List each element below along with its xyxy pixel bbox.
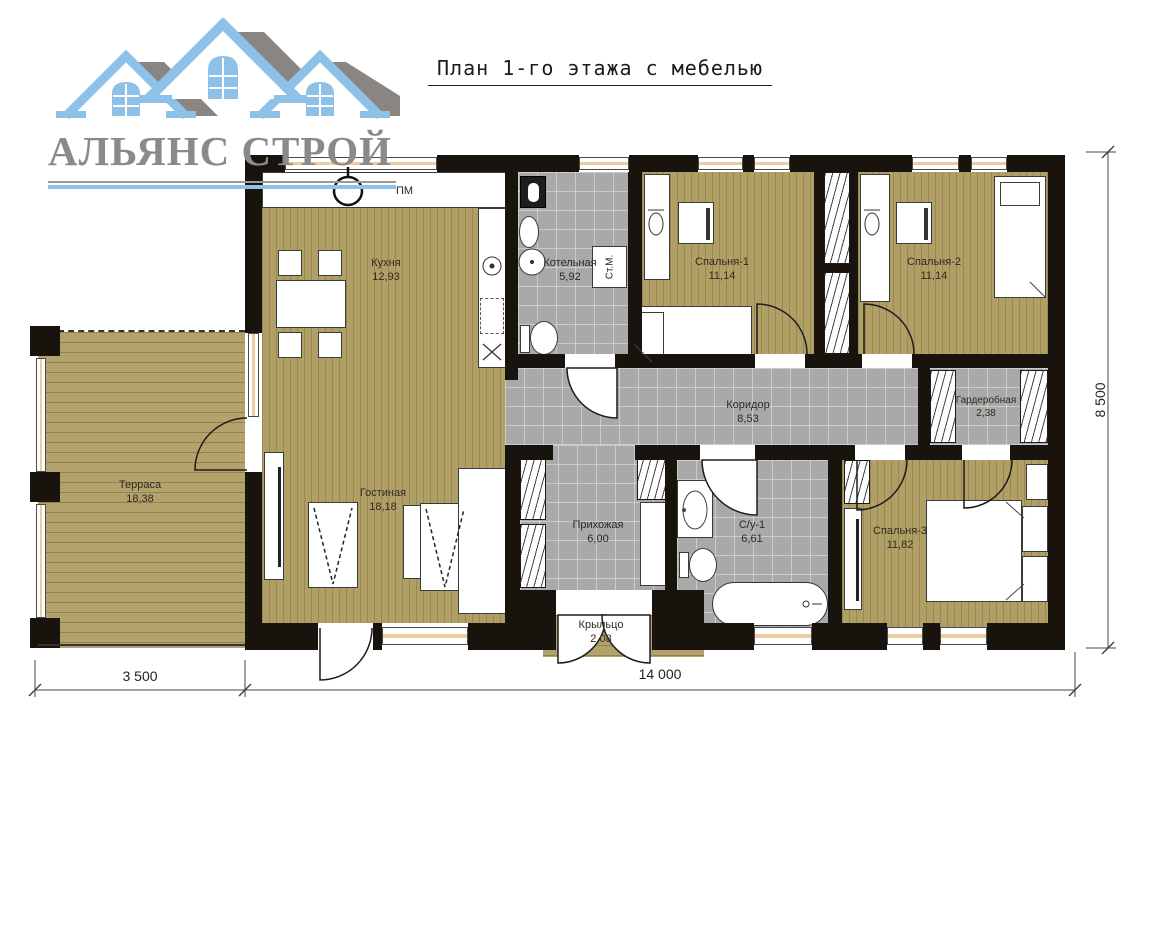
wall [912, 354, 1048, 368]
room-label-hallway: Прихожая6,00 [573, 518, 624, 547]
room-area: 6,00 [587, 533, 608, 545]
room-label-corridor: Коридор8,53 [726, 398, 769, 427]
bathroom-sink-unit [677, 480, 713, 538]
wall [805, 354, 862, 368]
room-label-terrace: Терраса18,38 [119, 478, 161, 507]
room-name: Терраса [119, 479, 161, 491]
wall [505, 368, 518, 380]
room-area: 18,18 [369, 501, 397, 513]
bathroom-toilet-tank [679, 552, 689, 578]
logo-divider-grey [48, 181, 396, 183]
window [912, 157, 959, 170]
company-name: АЛЬЯНС СТРОЙ [48, 127, 400, 175]
wardrobe-hall-lower [520, 524, 546, 588]
room-label-living: Гостиная18,18 [360, 486, 406, 515]
wall [850, 172, 858, 368]
wall [505, 590, 556, 650]
room-area: 11,14 [921, 270, 948, 282]
bedroom1-shelf [644, 174, 670, 280]
page-title: План 1-го этажа с мебелью [428, 56, 772, 86]
bedroom1-desk [678, 202, 714, 244]
dining-table [276, 280, 346, 328]
room-name: Спальня-3 [873, 525, 927, 537]
dining-chair [278, 332, 302, 358]
wall [629, 155, 698, 172]
wall [245, 623, 318, 650]
dim-house-depth: 8 500 [1092, 382, 1108, 417]
bedroom3-nightstand-top [1022, 506, 1048, 552]
wall [635, 445, 677, 460]
window [754, 627, 812, 645]
window [754, 157, 790, 170]
room-area: 11,14 [709, 270, 736, 282]
window [887, 627, 923, 645]
bedroom3-bed [926, 500, 1022, 602]
terrace-top-edge [38, 330, 245, 332]
room-name: Котельная [543, 257, 596, 269]
terrace-bottom-edge [38, 644, 245, 646]
room-name: Гардеробная [956, 395, 1017, 406]
window [579, 157, 629, 170]
armchair-left [308, 502, 358, 588]
bedroom3-corner-cabinet [1026, 464, 1048, 500]
washing-machine: Ст.М. [592, 246, 627, 288]
wardrobe-room-left-unit [930, 370, 956, 443]
sofa [458, 468, 508, 614]
wall [652, 590, 704, 650]
boiler-toilet-bowl [530, 321, 558, 355]
bathtub [712, 582, 828, 626]
wall [743, 155, 754, 172]
terrace-post-mid [30, 472, 60, 502]
room-area: 12,93 [372, 271, 400, 283]
wall [905, 445, 962, 460]
dining-chair [278, 250, 302, 276]
wardrobe-bedroom3 [844, 460, 870, 504]
bathroom-toilet-bowl [689, 548, 717, 582]
wall [824, 264, 850, 272]
logo-divider-blue [48, 185, 396, 189]
bedroom2-desk [896, 202, 932, 244]
room-area: 8,53 [737, 413, 758, 425]
boiler-unit [520, 176, 546, 208]
tv-stand [264, 452, 284, 580]
wall [828, 445, 855, 460]
room-area: 5,92 [559, 271, 580, 283]
wall [518, 354, 565, 368]
room-label-kitchen: Кухня12,93 [371, 256, 400, 285]
room-name: Коридор [726, 399, 769, 411]
washing-machine-label: Ст.М. [604, 255, 615, 280]
room-area: 18,38 [126, 493, 154, 505]
wall [628, 172, 642, 368]
wall [755, 445, 828, 460]
room-name: С/у-1 [739, 519, 765, 531]
wall [918, 368, 930, 445]
wardrobe-hall-upper [520, 452, 546, 520]
fridge [480, 298, 504, 334]
window [248, 333, 259, 417]
bedroom1-pillow [640, 312, 664, 356]
terrace-railing-window-lower [36, 504, 46, 618]
room-label-bedroom3: Спальня-311,82 [873, 524, 927, 553]
kitchen-counter-side [478, 208, 506, 368]
room-area: 2,38 [976, 408, 995, 419]
wall [505, 172, 518, 368]
room-label-wardrobe-room: Гардеробная2,38 [956, 394, 1017, 420]
room-name: Гостиная [360, 487, 406, 499]
wall [923, 623, 940, 650]
dim-house-width: 14 000 [639, 666, 682, 682]
wall [828, 460, 842, 628]
dim-terrace-width: 3 500 [122, 668, 157, 684]
company-logo: АЛЬЯНС СТРОЙ [48, 18, 400, 189]
boiler-sink [519, 216, 539, 248]
wall [1048, 155, 1065, 650]
bedroom2-pillow [1000, 182, 1040, 206]
wall [814, 172, 824, 368]
room-name: Спальня-2 [907, 256, 961, 268]
wall [790, 155, 912, 172]
room-name: Крыльцо [579, 619, 624, 631]
floor-plan-page: Ст.М. [0, 0, 1160, 938]
bedroom2-shelf [860, 174, 890, 302]
dining-chair [318, 332, 342, 358]
door-arc-living-exit [320, 628, 372, 680]
wall [704, 623, 754, 650]
logo-roofs-icon [48, 18, 400, 120]
wall [1010, 445, 1048, 460]
window [698, 157, 743, 170]
room-area: 11,82 [887, 539, 914, 551]
floor-corridor [505, 368, 918, 445]
wardrobe-bedroom1 [824, 172, 850, 264]
wall [373, 623, 382, 650]
room-area: 2,08 [590, 633, 611, 645]
dining-chair [318, 250, 342, 276]
room-label-boiler: Котельная5,92 [543, 256, 596, 285]
wardrobe-bedroom2 [824, 272, 850, 354]
window [940, 627, 987, 645]
wall [677, 445, 700, 460]
wall [959, 155, 971, 172]
terrace-post-top [30, 326, 60, 356]
wall [665, 460, 677, 590]
window [971, 157, 1007, 170]
room-name: Спальня-1 [695, 256, 749, 268]
window [382, 627, 468, 645]
room-name: Кухня [371, 257, 400, 269]
terrace-railing-window-upper [36, 358, 46, 472]
room-area: 6,61 [741, 533, 762, 545]
wall [615, 354, 755, 368]
wardrobe-room-right-unit [1020, 370, 1048, 443]
room-label-porch: Крыльцо2,08 [579, 618, 624, 647]
room-label-bedroom1: Спальня-111,14 [695, 255, 749, 284]
room-name: Прихожая [573, 519, 624, 531]
wall [437, 155, 579, 172]
wall [812, 623, 887, 650]
room-label-bathroom: С/у-16,61 [739, 518, 765, 547]
bedroom3-tv-stand [844, 508, 862, 610]
bedroom3-nightstand-bottom [1022, 556, 1048, 602]
room-label-bedroom2: Спальня-211,14 [907, 255, 961, 284]
boiler-toilet-tank [520, 325, 530, 353]
wall [987, 623, 1065, 650]
